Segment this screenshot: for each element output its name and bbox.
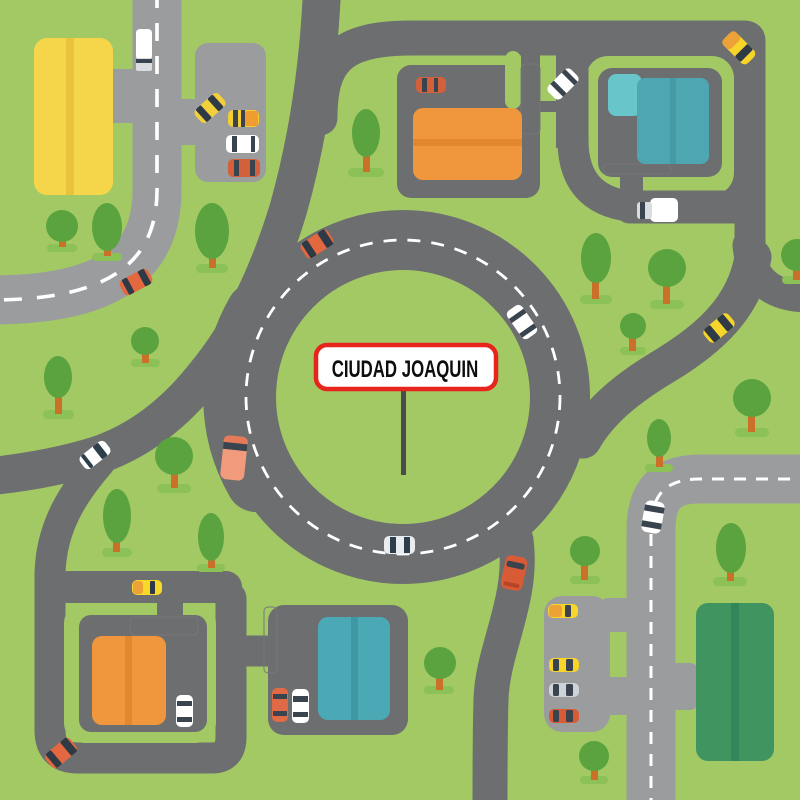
svg-text:CIUDAD JOAQUIN: CIUDAD JOAQUIN bbox=[332, 356, 478, 383]
